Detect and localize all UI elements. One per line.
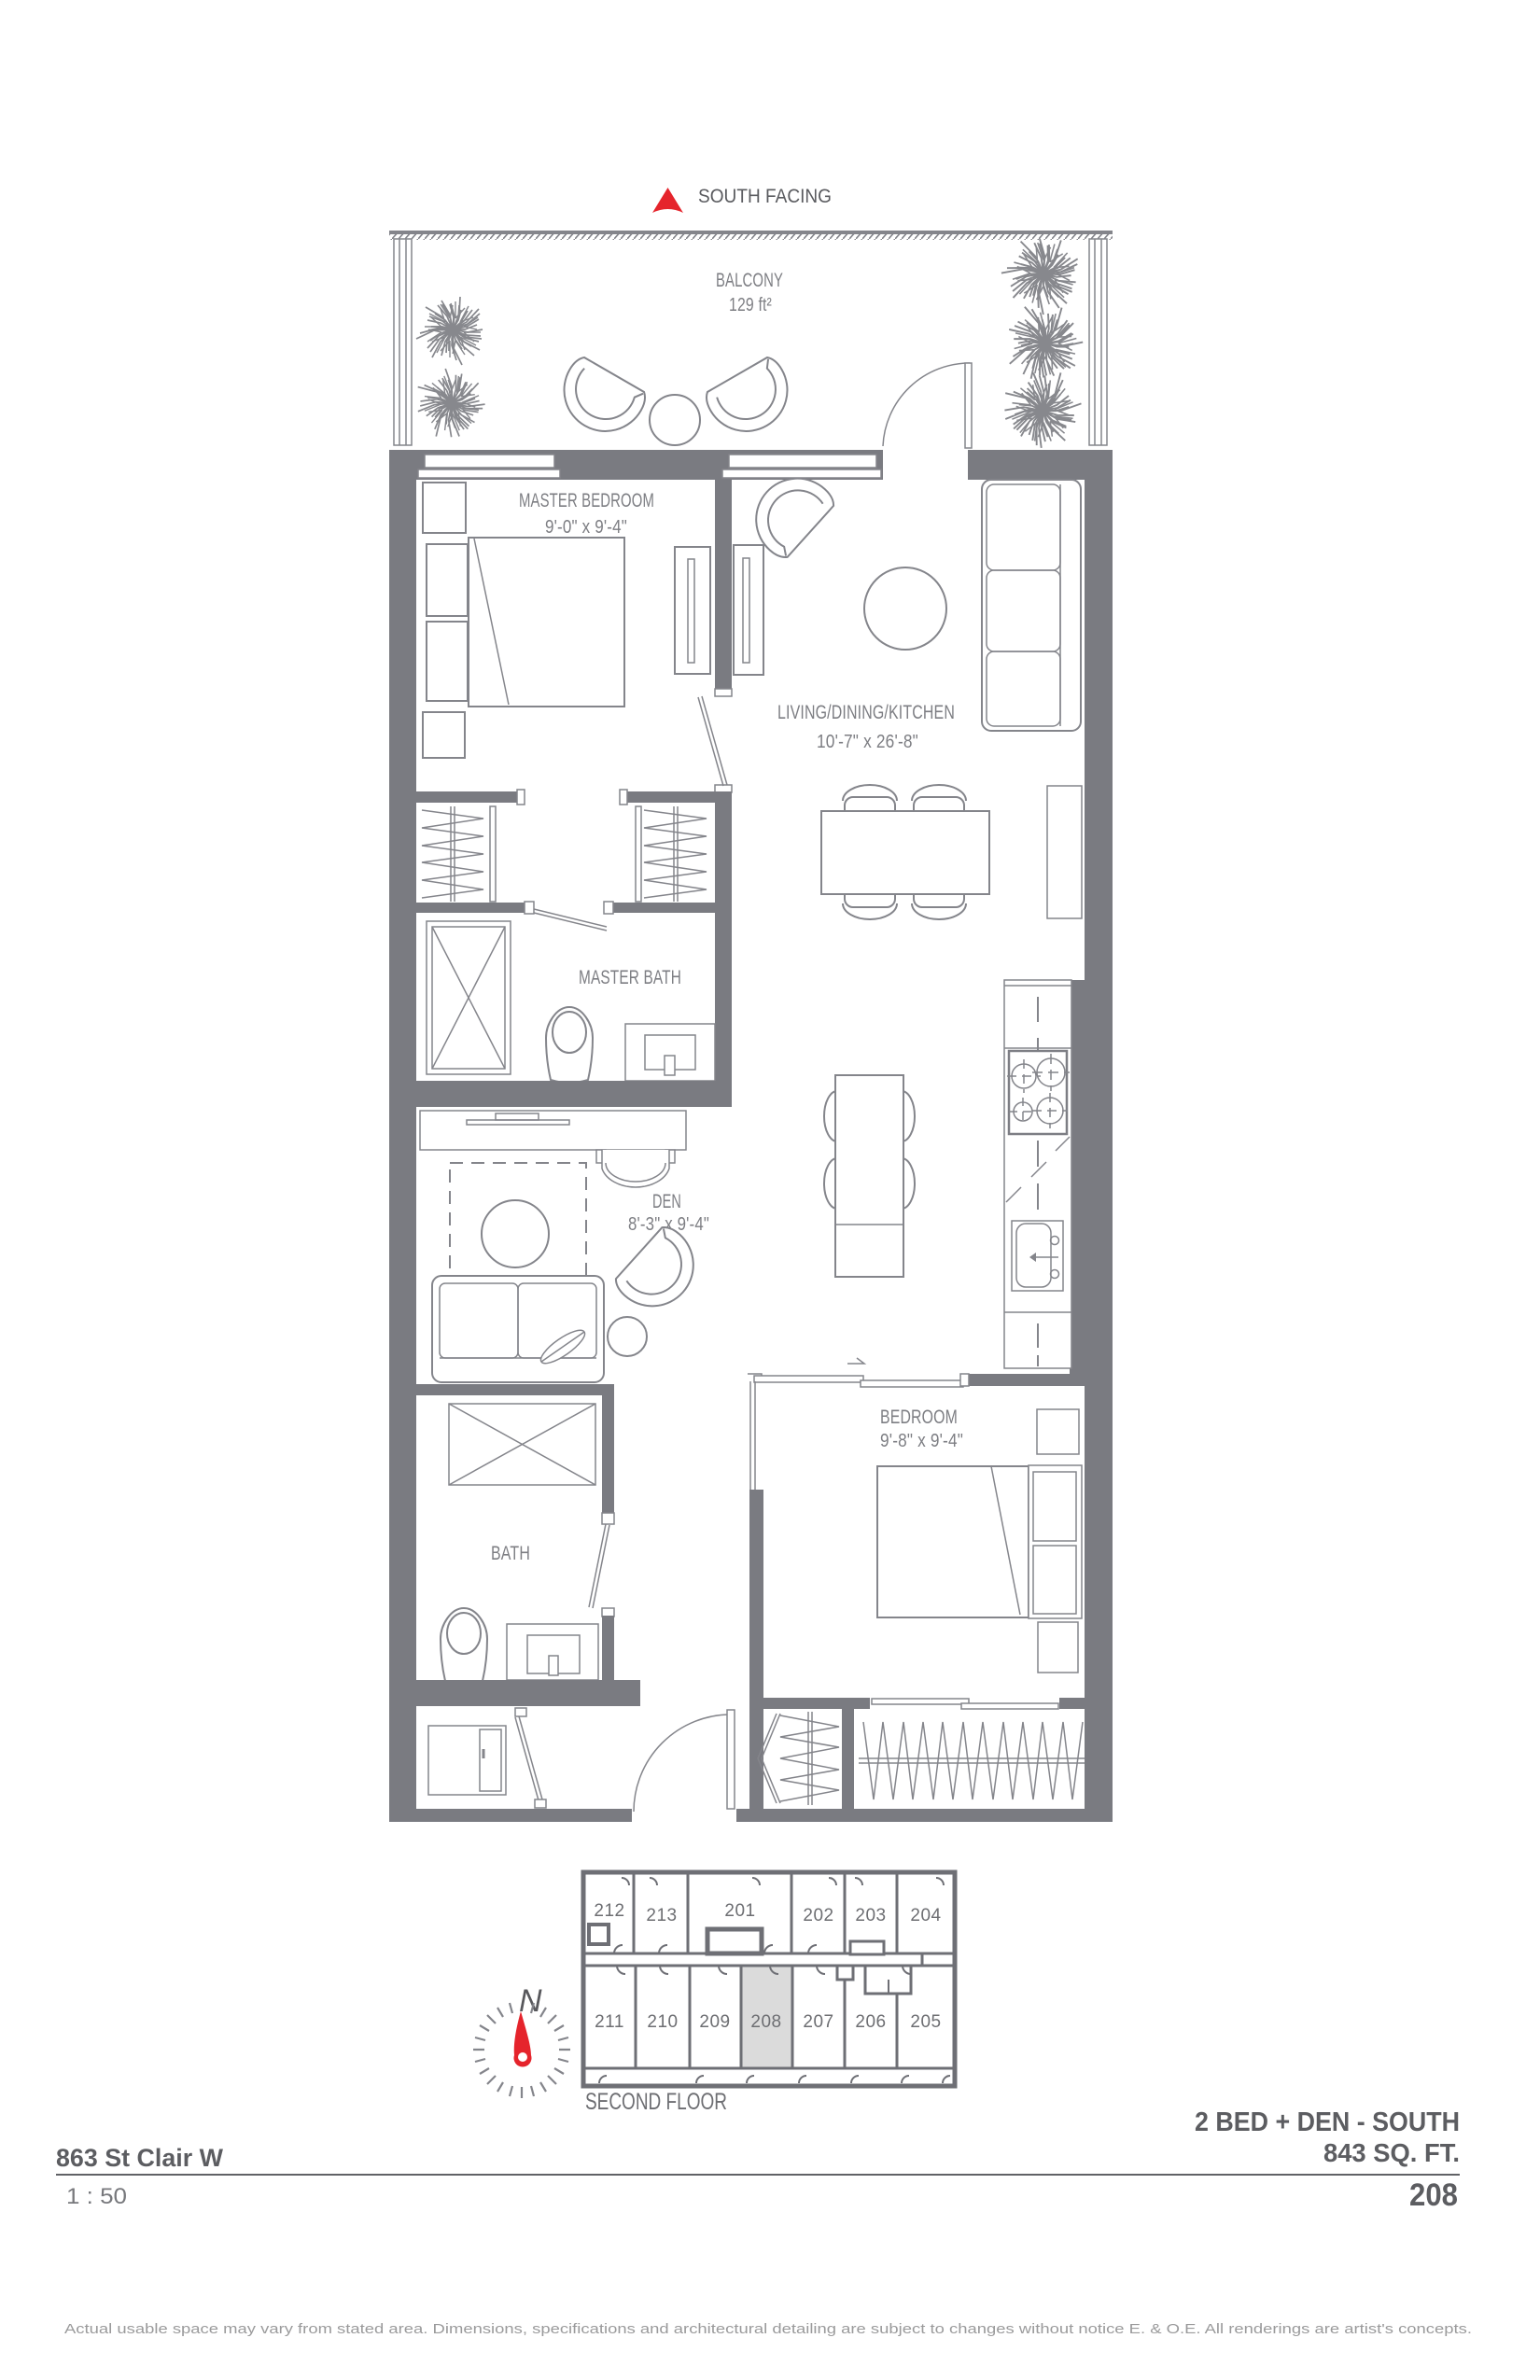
svg-text:202: 202 — [803, 1906, 833, 1925]
svg-text:LIVING/DINING/KITCHEN: LIVING/DINING/KITCHEN — [777, 702, 955, 723]
svg-text:204: 204 — [910, 1906, 941, 1925]
svg-text:206: 206 — [855, 2012, 886, 2032]
svg-text:BALCONY: BALCONY — [716, 270, 783, 291]
svg-text:1 : 50: 1 : 50 — [66, 2184, 127, 2209]
svg-text:BEDROOM: BEDROOM — [880, 1407, 958, 1428]
svg-text:DEN: DEN — [652, 1191, 681, 1212]
svg-text:201: 201 — [724, 1901, 755, 1921]
svg-text:211: 211 — [595, 2012, 624, 2032]
svg-text:843 SQ. FT.: 843 SQ. FT. — [1323, 2138, 1460, 2167]
svg-text:10'-7" x 26'-8": 10'-7" x 26'-8" — [817, 732, 918, 752]
svg-text:N: N — [519, 1983, 542, 2019]
svg-text:208: 208 — [1409, 2177, 1458, 2213]
svg-text:Actual usable space may vary f: Actual usable space may vary from stated… — [64, 2321, 1472, 2337]
svg-text:MASTER BATH: MASTER BATH — [579, 967, 681, 988]
svg-text:213: 213 — [646, 1906, 677, 1925]
svg-text:BATH: BATH — [491, 1543, 530, 1564]
svg-text:MASTER BEDROOM: MASTER BEDROOM — [519, 490, 654, 511]
svg-text:2 BED + DEN - SOUTH: 2 BED + DEN - SOUTH — [1195, 2107, 1460, 2137]
svg-text:9'-8" x 9'-4": 9'-8" x 9'-4" — [880, 1431, 963, 1451]
svg-text:210: 210 — [647, 2012, 678, 2032]
svg-text:205: 205 — [910, 2012, 941, 2032]
svg-text:SECOND FLOOR: SECOND FLOOR — [585, 2089, 727, 2115]
svg-text:203: 203 — [855, 1906, 886, 1925]
svg-text:208: 208 — [750, 2012, 781, 2032]
svg-text:SOUTH FACING: SOUTH FACING — [698, 186, 832, 207]
svg-text:207: 207 — [803, 2012, 833, 2032]
svg-text:863 St Clair W: 863 St Clair W — [56, 2144, 224, 2172]
svg-text:129 ft²: 129 ft² — [729, 295, 772, 315]
svg-text:212: 212 — [594, 1901, 624, 1921]
svg-text:209: 209 — [699, 2012, 730, 2032]
svg-text:9'-0" x 9'-4": 9'-0" x 9'-4" — [545, 517, 627, 538]
